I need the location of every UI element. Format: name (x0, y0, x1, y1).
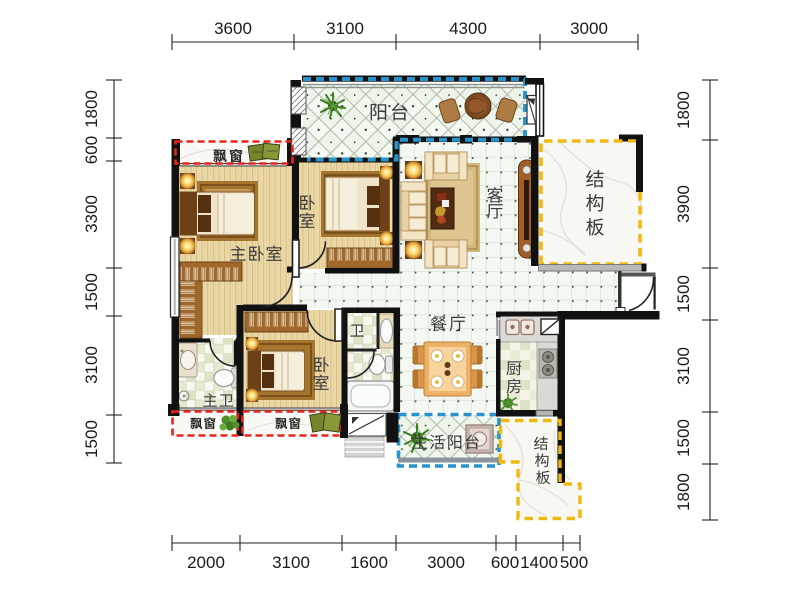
svg-text:3100: 3100 (326, 19, 364, 38)
svg-text:1800: 1800 (82, 90, 101, 128)
svg-text:3100: 3100 (82, 346, 101, 384)
svg-text:600: 600 (491, 553, 519, 572)
svg-text:500: 500 (560, 553, 588, 572)
svg-text:3000: 3000 (427, 553, 465, 572)
svg-text:1500: 1500 (674, 275, 693, 313)
svg-text:1500: 1500 (82, 273, 101, 311)
svg-text:3100: 3100 (272, 553, 310, 572)
svg-text:3300: 3300 (82, 195, 101, 233)
svg-text:1500: 1500 (82, 420, 101, 458)
svg-text:3900: 3900 (674, 185, 693, 223)
svg-text:3600: 3600 (214, 19, 252, 38)
svg-text:600: 600 (82, 136, 101, 164)
svg-text:1500: 1500 (674, 419, 693, 457)
svg-text:3000: 3000 (570, 19, 608, 38)
svg-text:1800: 1800 (674, 473, 693, 511)
svg-text:4300: 4300 (449, 19, 487, 38)
svg-text:1400: 1400 (520, 553, 558, 572)
svg-text:1600: 1600 (350, 553, 388, 572)
svg-text:2000: 2000 (187, 553, 225, 572)
svg-text:1800: 1800 (674, 91, 693, 129)
svg-text:3100: 3100 (674, 347, 693, 385)
